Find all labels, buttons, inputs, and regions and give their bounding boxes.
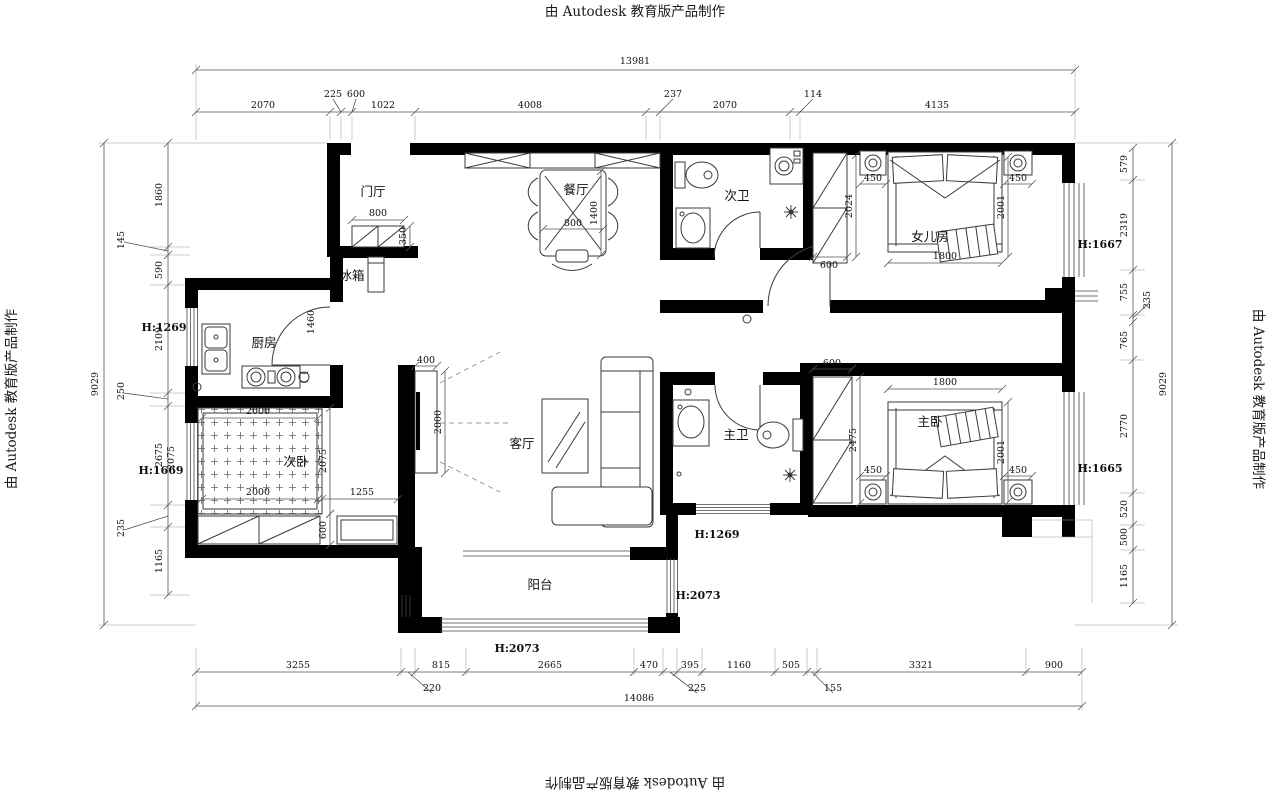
- dim-chain: 1255: [318, 487, 402, 503]
- bath1-toilet: [757, 419, 803, 451]
- dim-label: 520: [1119, 500, 1130, 518]
- dim-label: 1860: [154, 183, 165, 207]
- height-label: H:2073: [675, 589, 720, 602]
- dim-label: 2675: [154, 443, 165, 467]
- dim-label: 225: [324, 89, 342, 100]
- girl-bed: [888, 152, 1002, 262]
- dim-label: 2000: [246, 406, 270, 417]
- watermark-right: 由 Autodesk 教育版产品制作: [1250, 309, 1266, 489]
- floor-plan-canvas: 由 Autodesk 教育版产品制作 由 Autodesk 教育版产品制作 由 …: [0, 0, 1269, 798]
- floor-drain: [743, 315, 751, 323]
- dim-label: 1800: [933, 377, 957, 388]
- dim-label: 1400: [589, 201, 600, 225]
- dim-label: 225: [688, 683, 706, 694]
- tv-cabinet: [415, 352, 508, 492]
- watermark-bottom: 由 Autodesk 教育版产品制作: [545, 774, 725, 790]
- dim-label: 2319: [1119, 213, 1130, 237]
- dim-label: 579: [1119, 155, 1130, 173]
- dim-chain: 450: [1000, 465, 1036, 480]
- dim-label: 155: [824, 683, 842, 694]
- dim-label: 755: [1119, 283, 1130, 301]
- furniture: [193, 148, 1032, 544]
- room-label-bed2: 次卧: [283, 454, 308, 469]
- room-label-bath1: 主卫: [723, 427, 748, 442]
- dim-label: 470: [640, 660, 658, 671]
- dim-label: 1255: [350, 487, 374, 498]
- dim-label: 4008: [518, 100, 542, 111]
- floor-plan-page: 由 Autodesk 教育版产品制作 由 Autodesk 教育版产品制作 由 …: [0, 0, 1269, 798]
- dim-label: 590: [154, 261, 165, 279]
- room-label-bed1: 主卧: [917, 414, 942, 429]
- dim-chain: 20701022400820704135225600237114: [192, 89, 1079, 116]
- bed2-cabinet-left: [198, 516, 320, 544]
- dim-label: 2770: [1119, 414, 1130, 438]
- dim-label: 2475: [848, 428, 859, 452]
- kitchen-door: [272, 307, 330, 365]
- dim-label: 235: [116, 519, 127, 537]
- girl-room-window: [1064, 183, 1084, 277]
- bath2-toilet: [675, 162, 718, 188]
- dim-chain: 579231975576527705205001165235: [1119, 144, 1153, 607]
- dim-label: 2070: [251, 100, 275, 111]
- dim-label: 450: [864, 465, 882, 476]
- dim-chain: 9029: [1158, 139, 1176, 629]
- master-window: [1064, 392, 1084, 505]
- dim-label: 800: [564, 218, 582, 229]
- dim-label: 2075: [318, 449, 329, 473]
- plant-icon: [783, 468, 797, 482]
- dim-label: 505: [782, 660, 800, 671]
- height-label: H:1667: [1077, 238, 1122, 251]
- room-label-bath2: 次卫: [724, 188, 749, 203]
- dim-label: 395: [681, 660, 699, 671]
- room-label-dining: 餐厅: [563, 182, 588, 197]
- dim-chain: 9029: [90, 139, 108, 629]
- dim-label: 9029: [90, 372, 101, 396]
- balcony-sliding-door: [463, 551, 630, 556]
- dim-label: 2109: [154, 327, 165, 351]
- dim-label: 13981: [620, 56, 650, 67]
- main-wardrobe: [813, 377, 852, 503]
- kitchen-sink: [202, 324, 230, 374]
- dim-chain: 800: [348, 208, 408, 224]
- main-nightstand-left: [860, 480, 886, 504]
- dim-label: 500: [1119, 528, 1130, 546]
- dim-chain: 3255815266547039511605053321900220225155: [192, 660, 1086, 694]
- girl-wardrobe: [813, 153, 847, 263]
- bed2-window: [187, 423, 198, 500]
- dining-cabinet: [465, 153, 660, 168]
- dim-chain: 400: [411, 355, 441, 370]
- bath1-window: [696, 505, 770, 514]
- kitchen-stove: [242, 366, 300, 388]
- dim-label: 2024: [844, 194, 855, 218]
- dim-chain: 14086: [192, 693, 1086, 710]
- dim-label: 2000: [246, 487, 270, 498]
- plant-icon: [784, 205, 798, 219]
- watermark-top: 由 Autodesk 教育版产品制作: [545, 4, 725, 20]
- dim-chain: 450: [856, 465, 890, 480]
- dim-chain: 1860590210926751165145250235: [116, 139, 172, 599]
- corridor-nib-window: [1075, 291, 1098, 301]
- dim-label: 450: [1009, 173, 1027, 184]
- dim-label: 1160: [727, 660, 751, 671]
- dim-label: 2665: [538, 660, 562, 671]
- room-label-fridge: 冰箱: [339, 268, 364, 283]
- dim-label: 400: [417, 355, 435, 366]
- dim-label: 815: [432, 660, 450, 671]
- fridge: [368, 257, 384, 292]
- dim-label: 2001: [996, 440, 1007, 464]
- dim-label: 1800: [933, 251, 957, 262]
- dim-label: 2000: [433, 410, 444, 434]
- main-bed: [888, 402, 1002, 504]
- dim-label: 1165: [1119, 564, 1130, 588]
- watermark-left: 由 Autodesk 教育版产品制作: [4, 309, 20, 489]
- room-label-kitchen: 厨房: [251, 335, 276, 350]
- dim-label: 1460: [306, 310, 317, 334]
- bed2-cabinet-right: [337, 516, 397, 544]
- floor-drain: [677, 472, 681, 476]
- dim-label: 1022: [371, 100, 395, 111]
- dim-label: 450: [864, 173, 882, 184]
- bath2-sink: [676, 208, 710, 248]
- dim-label: 600: [823, 358, 841, 369]
- dim-label: 235: [1142, 291, 1153, 309]
- dim-label: 4135: [925, 100, 949, 111]
- bath2-door: [714, 212, 760, 258]
- dim-label: 2001: [996, 195, 1007, 219]
- shoe-cabinet: [352, 226, 404, 247]
- washing-machine: [770, 148, 803, 184]
- dim-label: 765: [1119, 331, 1130, 349]
- dim-label: 3321: [909, 660, 933, 671]
- dim-label: 1165: [154, 549, 165, 573]
- dim-label: 600: [820, 260, 838, 271]
- dim-label: 220: [423, 683, 441, 694]
- dim-label: 145: [116, 231, 127, 249]
- floor-drain: [685, 389, 691, 395]
- dim-label: 600: [347, 89, 365, 100]
- rug: [542, 399, 588, 473]
- height-label: H:1665: [1077, 462, 1122, 475]
- dim-label: 800: [369, 208, 387, 219]
- dim-label: 2070: [713, 100, 737, 111]
- bath1-door: [715, 385, 760, 430]
- dim-label: 114: [804, 89, 822, 100]
- dim-label: 14086: [624, 693, 654, 704]
- dim-label: 600: [318, 521, 329, 539]
- dim-chain: 13981: [192, 56, 1079, 74]
- dim-label: 237: [664, 89, 682, 100]
- dim-chain: 1800: [884, 377, 1006, 393]
- room-label-living: 客厅: [509, 436, 534, 451]
- dim-label: 9029: [1158, 372, 1169, 396]
- bath1-sink: [673, 400, 709, 446]
- height-label: H:2073: [494, 642, 539, 655]
- balcony-window: [440, 619, 648, 631]
- room-label-balcony: 阳台: [527, 577, 552, 592]
- girl-nightstand-left: [860, 151, 886, 175]
- height-label: H:1269: [694, 528, 739, 541]
- room-label-entry: 门厅: [360, 184, 385, 199]
- room-label-girl-room: 女儿房: [911, 229, 949, 244]
- dim-label: 900: [1045, 660, 1063, 671]
- dim-label: 3255: [286, 660, 310, 671]
- kitchen-window: [187, 308, 198, 366]
- dim-label: 450: [1009, 465, 1027, 476]
- dim-label: 350: [398, 227, 409, 245]
- dim-label: 250: [116, 382, 127, 400]
